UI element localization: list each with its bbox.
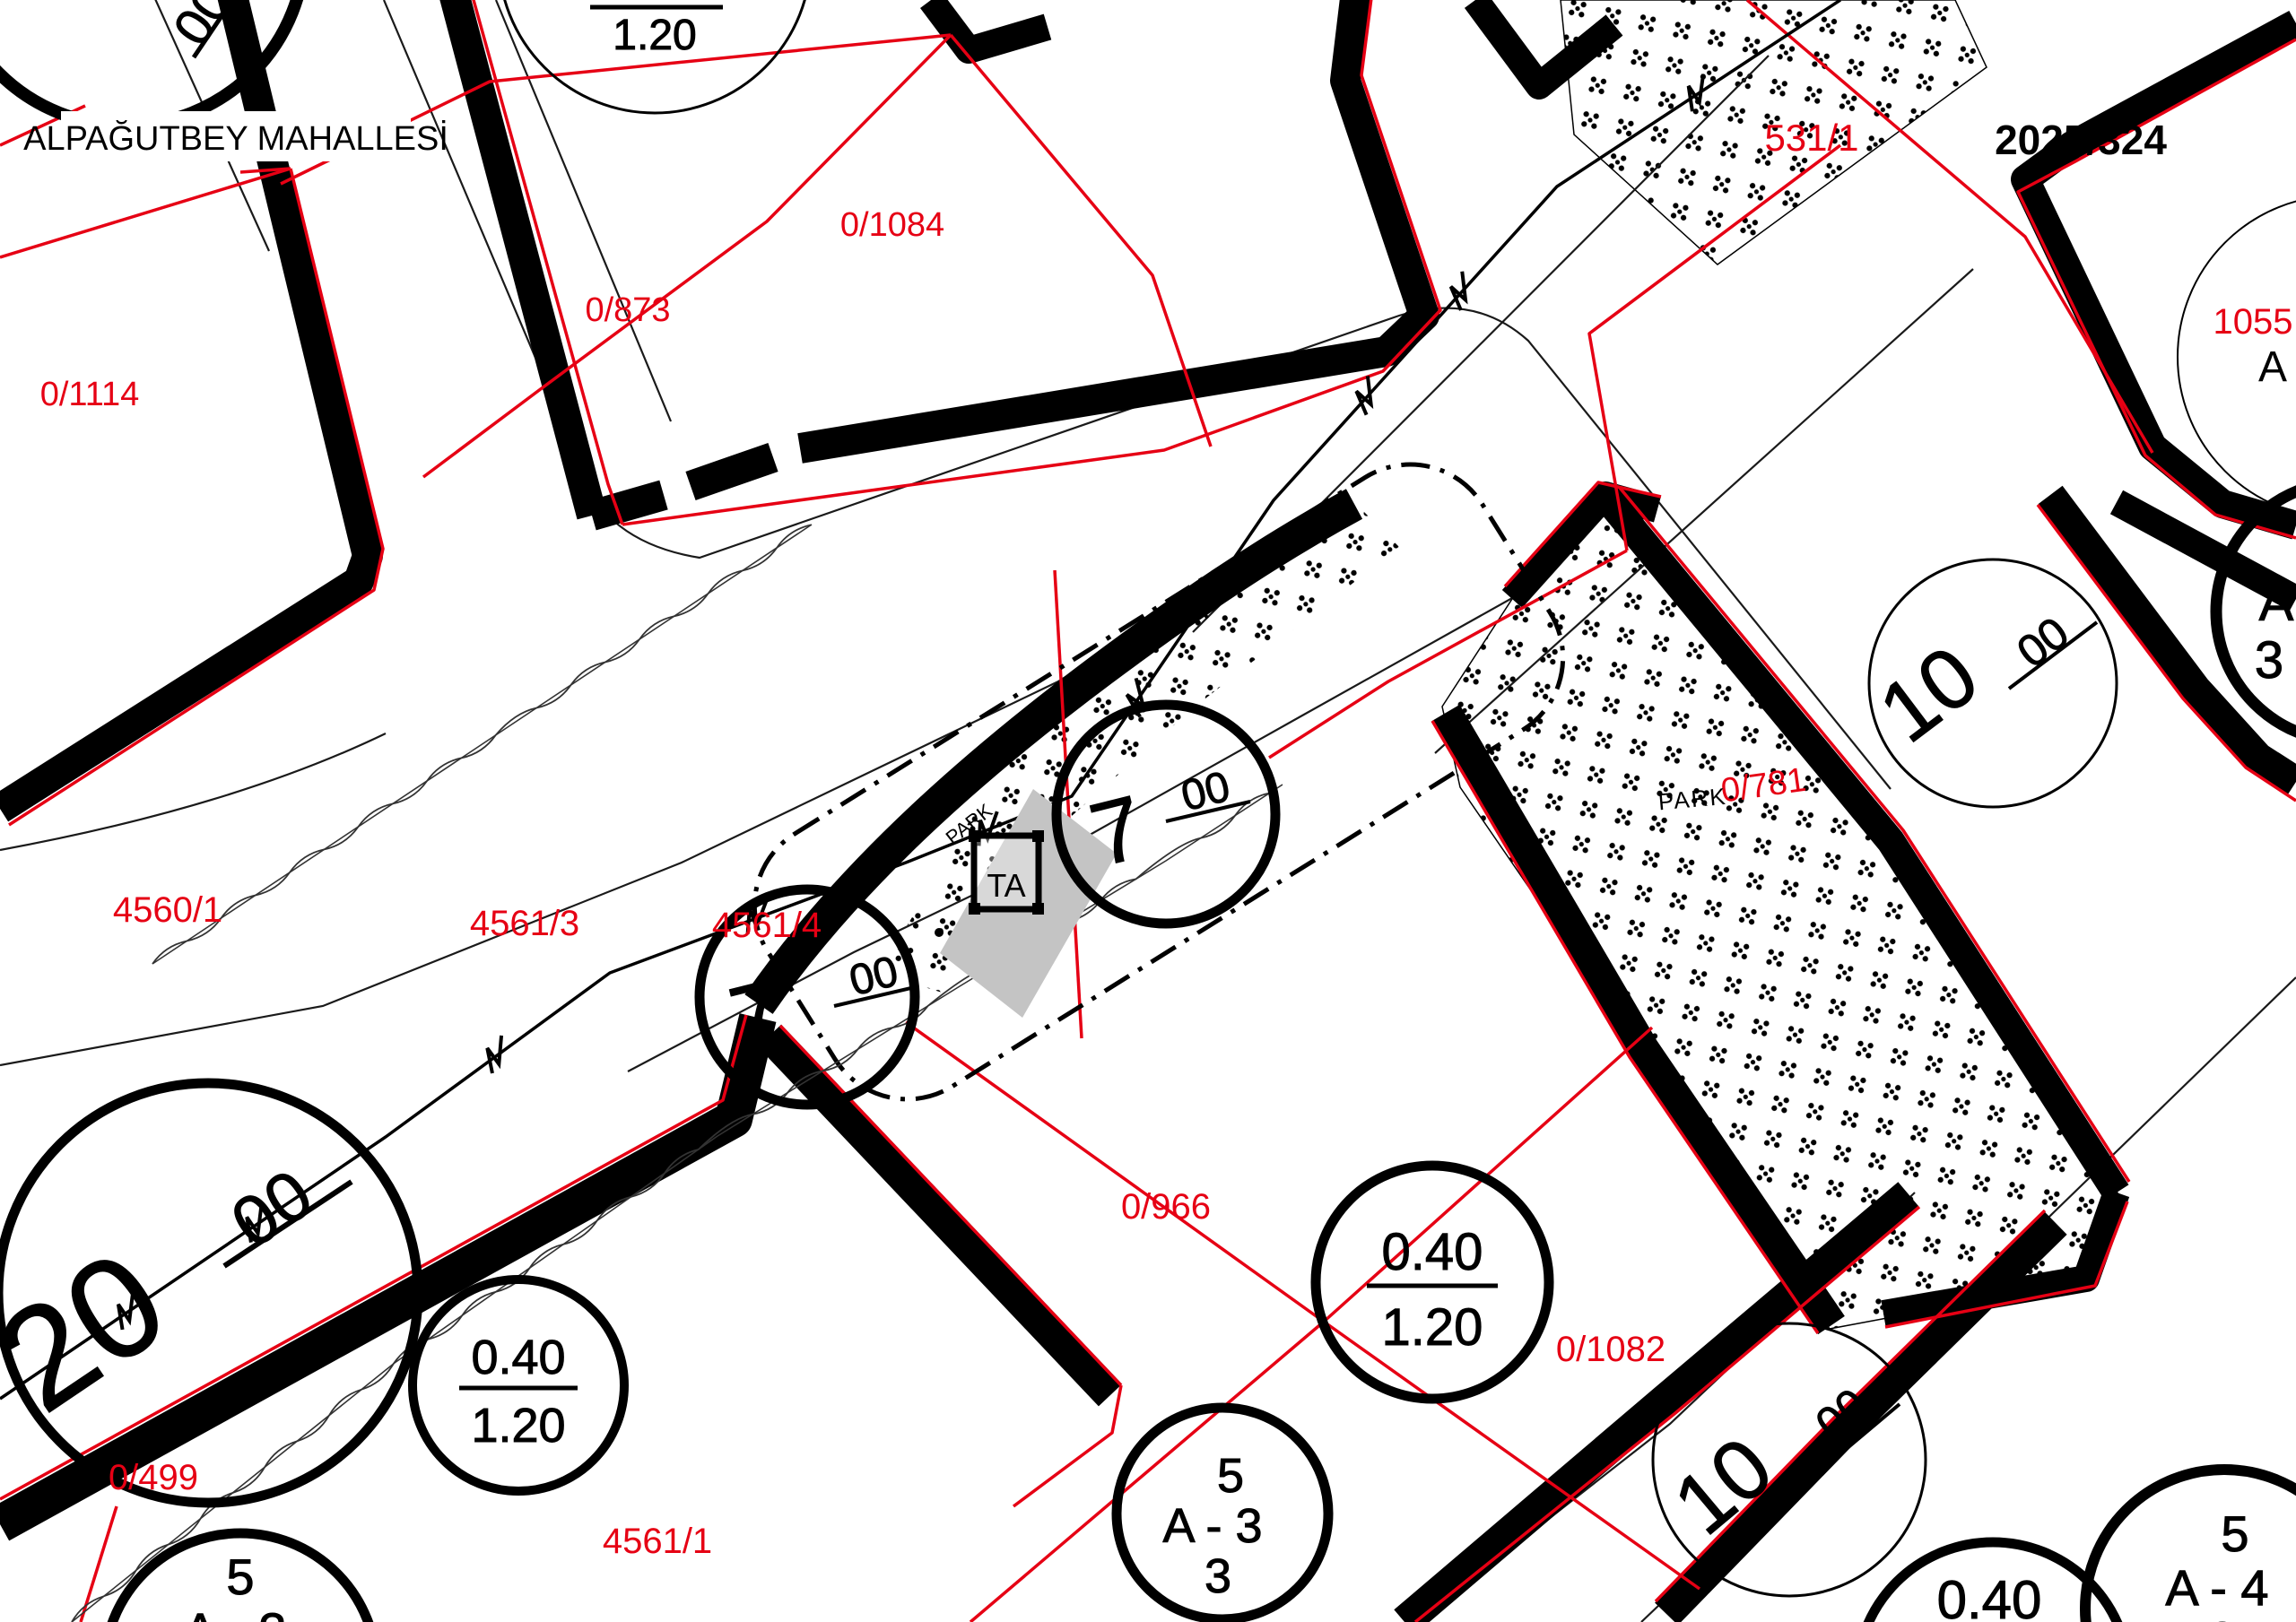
red-line — [0, 169, 291, 257]
parcel-label-4561-4: 4561/4 — [712, 906, 822, 945]
band — [592, 495, 664, 516]
red-line — [970, 1028, 1652, 1622]
band — [691, 457, 773, 486]
ratio-bottom: 1.20 — [1382, 1298, 1483, 1357]
ratio-circle — [413, 1279, 624, 1491]
map-canvas: TA 00 1.20 7 00 7 00 10 00 10 00 20 — [0, 0, 2296, 1622]
road-width-value: 10 — [1657, 1419, 1790, 1553]
neighborhood-label: ALPAĞUTBEY MAHALLESİ — [23, 118, 448, 158]
band — [2025, 23, 2296, 525]
block-bands — [0, 0, 2296, 1622]
band — [931, 0, 1048, 50]
ratio-bottom: 1.20 — [471, 1399, 565, 1453]
plan-number: 2025/324 — [1995, 117, 2167, 163]
zoning-storeys: 5 — [2221, 1505, 2248, 1562]
zoning-type: A — [2259, 574, 2294, 632]
parcel-label-0-1082: 0/1082 — [1556, 1330, 1665, 1369]
annotation-circles: 00 1.20 7 00 7 00 10 00 10 00 20 00 0.40 — [0, 0, 2296, 1622]
parcel-label-4560-1: 4560/1 — [113, 890, 222, 930]
ratio-top: 0.40 — [1382, 1223, 1483, 1281]
band — [770, 1036, 1110, 1395]
parcel-label-4561-3: 4561/3 — [470, 904, 579, 943]
red-line — [622, 0, 1440, 525]
ta-label: TA — [987, 867, 1025, 904]
ratio-top: 0.40 — [1937, 1570, 2042, 1622]
zoning-type: A - 4 — [2165, 1559, 2268, 1616]
parcel-red-lines — [0, 0, 2296, 1622]
zoning-extra: 3 — [2255, 631, 2283, 690]
parcel-label-0-1084: 0/1084 — [840, 206, 944, 244]
ta-corner-mark — [969, 903, 980, 915]
zoning-extra: 3 — [1205, 1549, 1231, 1603]
ratio-circle — [1316, 1166, 1549, 1399]
road-edge-line — [0, 507, 1345, 1065]
parcel-label-0-873: 0/873 — [585, 291, 670, 329]
ta-corner-mark — [1032, 830, 1044, 842]
parcel-label-4561-1: 4561/1 — [603, 1522, 712, 1561]
parcel-label-531-1: 531/1 — [1764, 117, 1858, 159]
red-line — [1013, 1385, 1121, 1506]
zoning-type: A - 3 — [1162, 1499, 1262, 1553]
cadastral-map: TA 00 1.20 7 00 7 00 10 00 10 00 20 — [0, 0, 2296, 1622]
ta-corner-mark — [1032, 903, 1044, 915]
block-label-a: A — [2258, 343, 2287, 391]
ratio-top: 0.40 — [471, 1331, 565, 1384]
parcel-label-0-1114: 0/1114 — [40, 376, 140, 413]
red-line — [9, 169, 383, 825]
parcel-label-0-499: 0/499 — [109, 1458, 198, 1497]
parcel-label-1055: 1055 — [2213, 302, 2293, 342]
cadastral-lines — [0, 0, 2296, 1622]
zoning-storeys: 5 — [226, 1548, 254, 1605]
survey-dot — [935, 928, 944, 937]
stream-core-line — [152, 525, 812, 964]
ratio-bottom: 1.20 — [613, 12, 696, 59]
zoning-extra: 3 — [2208, 1611, 2236, 1622]
red-line — [780, 1026, 1121, 1385]
zoning-storeys: 5 — [1217, 1449, 1244, 1503]
parcel-label-0-966: 0/966 — [1121, 1187, 1211, 1227]
zoning-type: A - 3 — [183, 1602, 286, 1622]
